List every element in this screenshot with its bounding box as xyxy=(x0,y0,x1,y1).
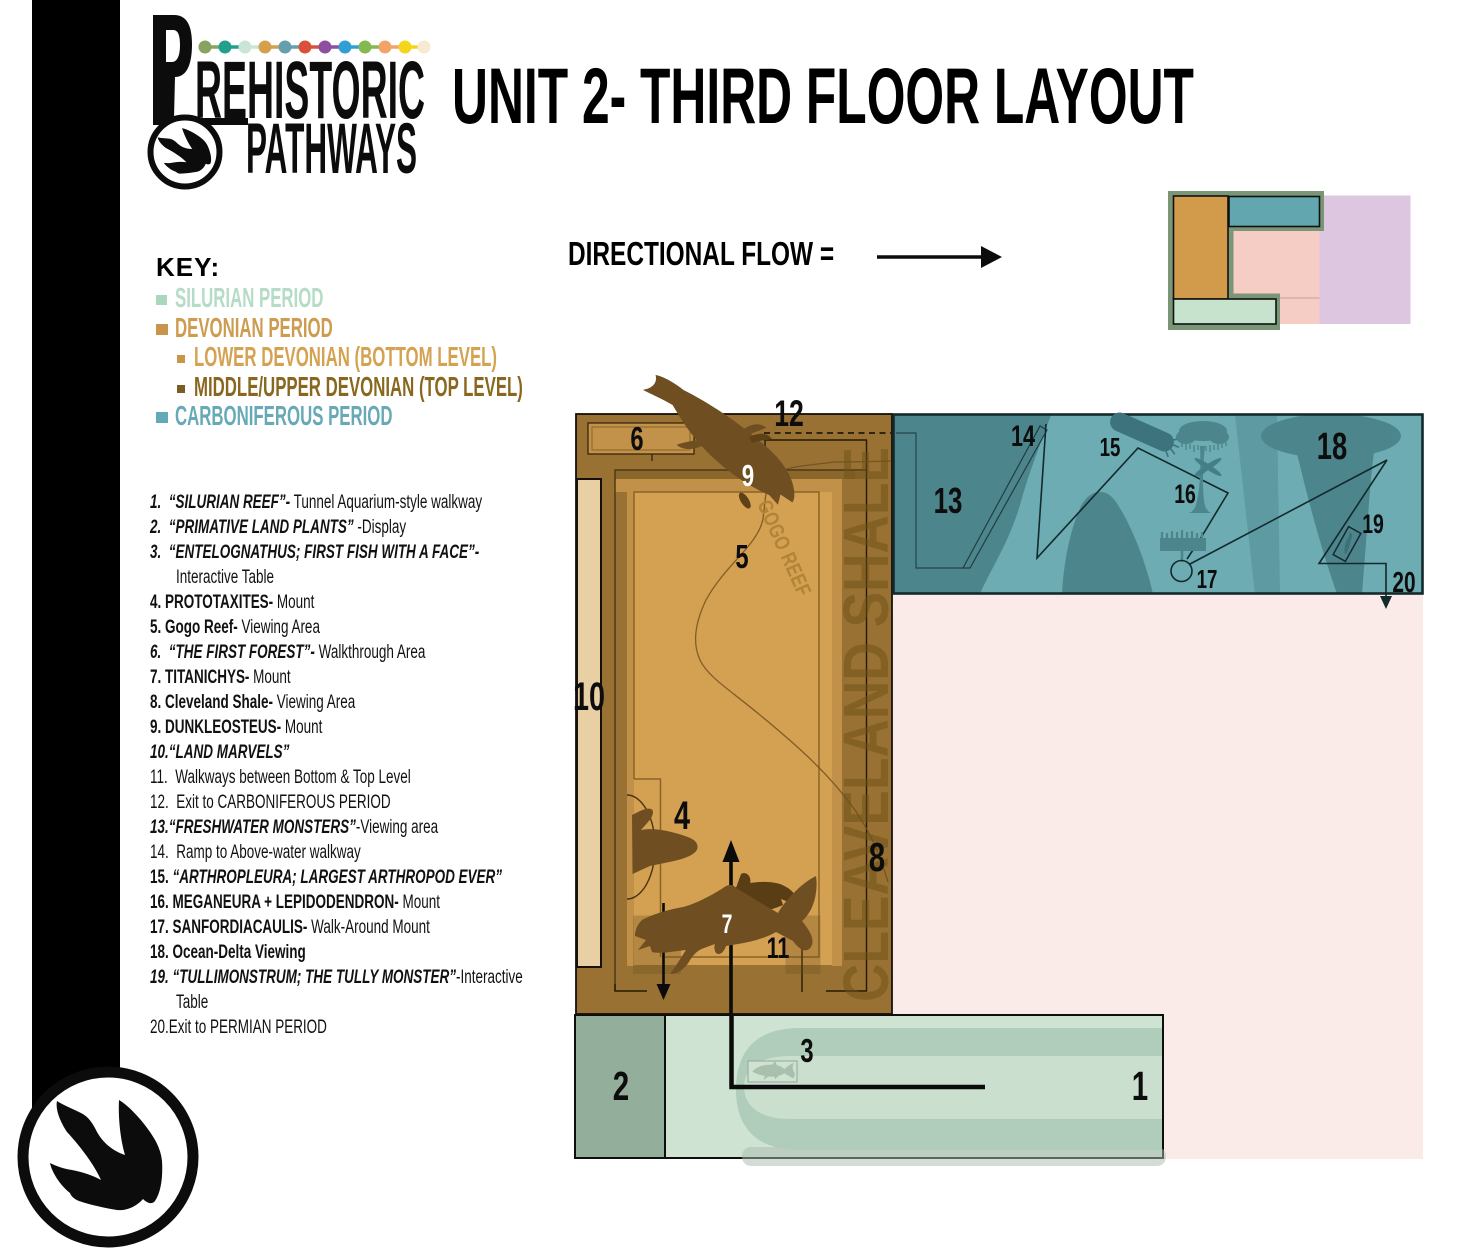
svg-text:1: 1 xyxy=(1132,1063,1148,1109)
svg-text:10: 10 xyxy=(573,674,605,719)
svg-text:20: 20 xyxy=(1392,567,1415,599)
svg-text:12: 12 xyxy=(774,393,804,434)
svg-text:13: 13 xyxy=(934,481,963,521)
svg-text:16: 16 xyxy=(1174,479,1196,509)
svg-text:3: 3 xyxy=(800,1033,813,1070)
svg-text:15: 15 xyxy=(1100,432,1121,462)
svg-text:PATHWAYS: PATHWAYS xyxy=(246,110,417,189)
svg-text:14: 14 xyxy=(1011,418,1035,452)
svg-text:18: 18 xyxy=(1317,426,1347,468)
svg-text:19: 19 xyxy=(1362,509,1384,539)
svg-text:5: 5 xyxy=(735,539,748,576)
svg-text:17: 17 xyxy=(1197,564,1218,594)
svg-text:CLEAVELAND SHALE: CLEAVELAND SHALE xyxy=(830,447,902,1002)
svg-text:7: 7 xyxy=(722,909,733,939)
svg-text:8: 8 xyxy=(869,834,885,880)
svg-text:4: 4 xyxy=(674,793,691,838)
svg-text:6: 6 xyxy=(630,421,643,458)
svg-text:2: 2 xyxy=(613,1063,629,1109)
svg-text:11: 11 xyxy=(767,930,790,964)
svg-text:9: 9 xyxy=(742,458,754,492)
